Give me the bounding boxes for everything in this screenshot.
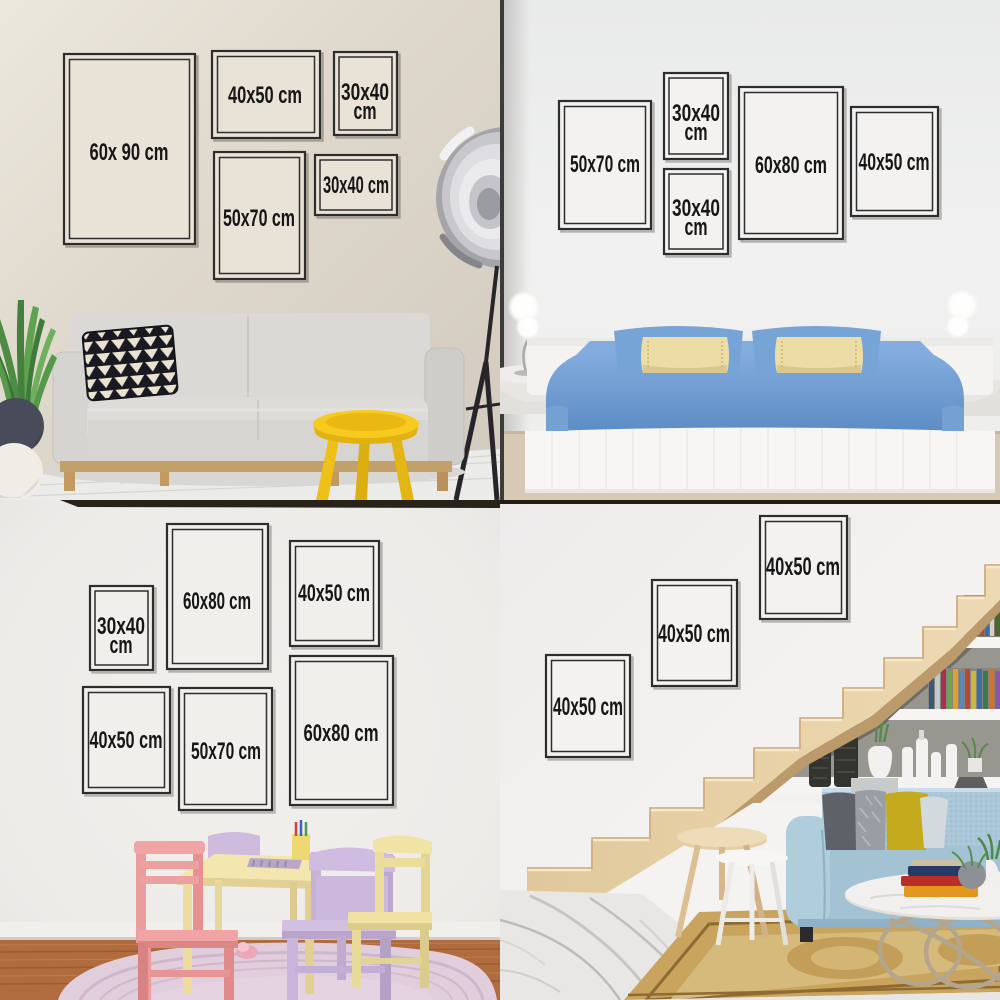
svg-text:40x50 cm: 40x50 cm [298,580,370,607]
svg-text:50x70 cm: 50x70 cm [191,738,261,765]
svg-text:40x50 cm: 40x50 cm [859,149,930,176]
svg-text:60x80 cm: 60x80 cm [755,152,827,179]
svg-text:60x80 cm: 60x80 cm [183,588,251,615]
svg-text:40x50 cm: 40x50 cm [766,553,840,581]
svg-text:40x50 cm: 40x50 cm [658,620,730,648]
svg-text:cm: cm [685,119,708,146]
svg-text:cm: cm [354,98,377,125]
svg-text:60x 90 cm: 60x 90 cm [90,139,169,166]
svg-text:30x40 cm: 30x40 cm [323,172,389,199]
svg-text:cm: cm [685,214,708,241]
svg-text:40x50 cm: 40x50 cm [90,727,163,754]
svg-text:40x50 cm: 40x50 cm [553,693,623,721]
svg-text:cm: cm [110,632,133,659]
svg-text:50x70 cm: 50x70 cm [570,151,640,178]
svg-text:40x50 cm: 40x50 cm [228,82,302,109]
svg-text:60x80 cm: 60x80 cm [304,720,379,747]
svg-text:50x70 cm: 50x70 cm [223,205,295,232]
